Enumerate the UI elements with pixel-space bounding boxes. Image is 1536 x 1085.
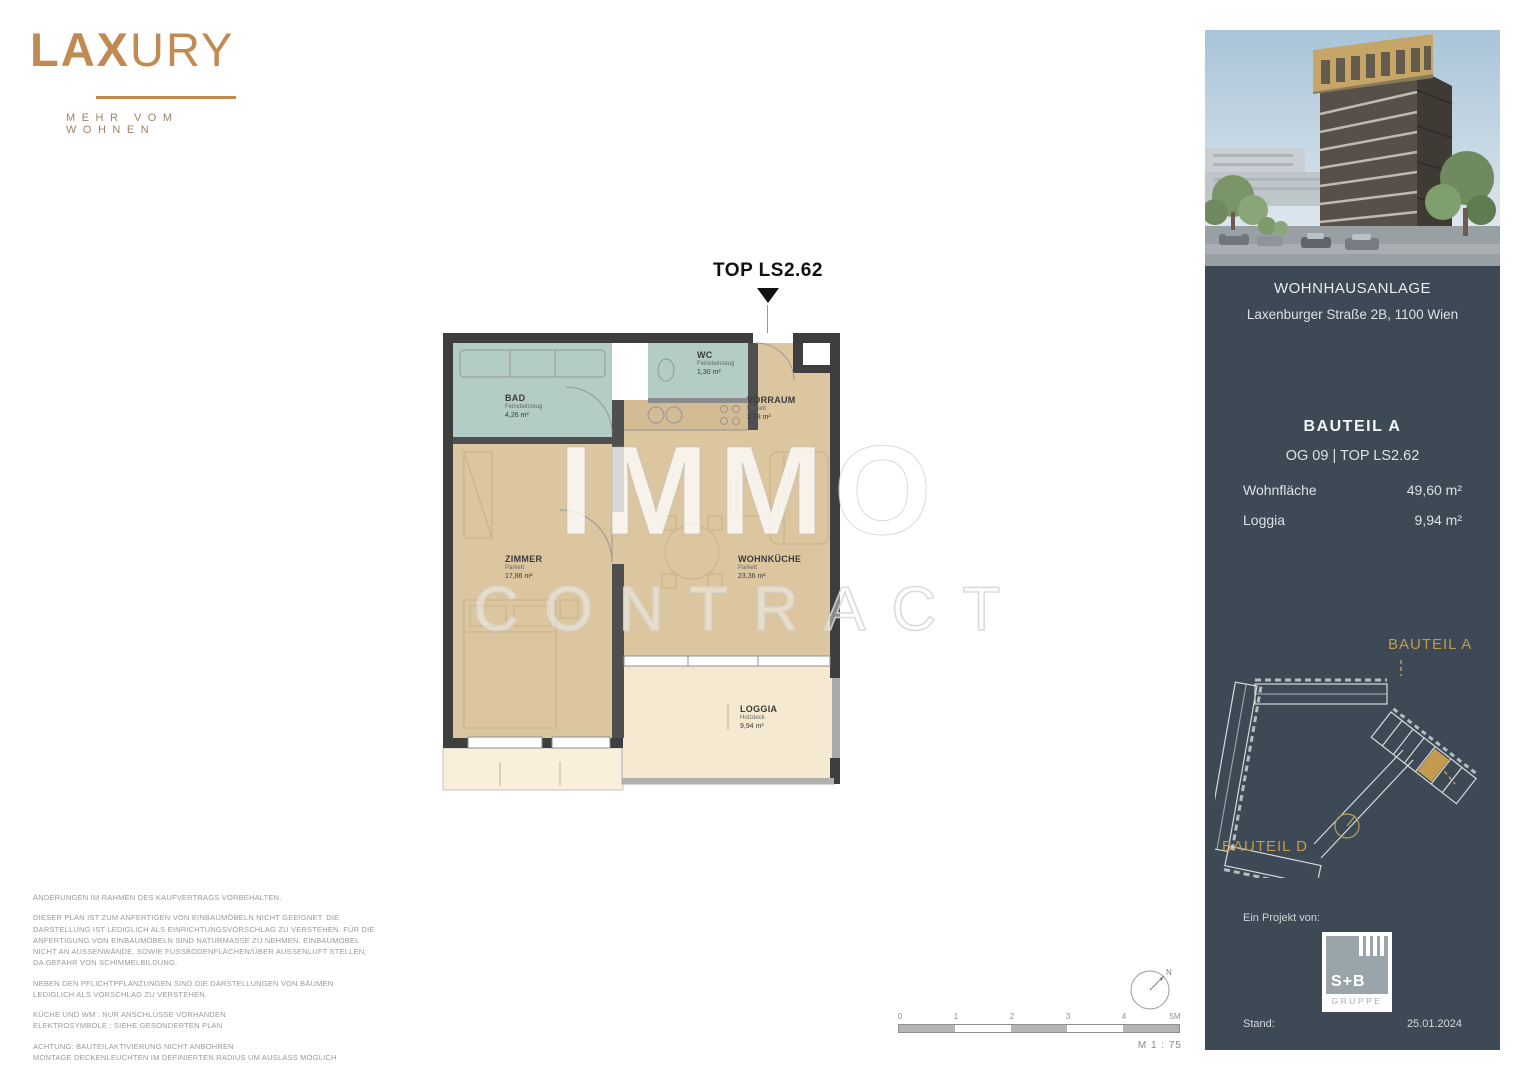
scale-bar-segments xyxy=(898,1024,1180,1033)
developer-logo-mark: S+B xyxy=(1326,936,1388,994)
disclaimer-paragraph: NEBEN DEN PFLICHTPFLANZUNGEN SIND DIE DA… xyxy=(33,978,378,1001)
floor-unit-line: OG 09 | TOP LS2.62 xyxy=(1205,448,1500,464)
stand-date: 25.01.2024 xyxy=(1407,1018,1462,1030)
brand-tagline: MEHR VOM WOHNEN xyxy=(66,112,234,136)
disclaimer-paragraph: ÄNDERUNGEN IM RAHMEN DES KAUFVERTRAGS VO… xyxy=(33,892,378,903)
building-rendering-image xyxy=(1205,30,1500,266)
disclaimer-paragraph: DIESER PLAN IST ZUM ANFERTIGEN VON EINBA… xyxy=(33,912,378,968)
project-title: WOHNHAUSANLAGE xyxy=(1205,280,1500,297)
area-value: 9,94 m² xyxy=(1415,512,1462,528)
room-label-zimmer: ZIMMER Parkett 17,86 m² xyxy=(505,554,542,582)
logo-divider xyxy=(96,96,236,99)
developer-logo-subtext: GRUPPE xyxy=(1326,996,1388,1006)
logo-bars-icon xyxy=(1359,936,1384,956)
disclaimer-paragraph: KÜCHE UND WM : NUR ANSCHLÜSSE VORHANDEN … xyxy=(33,1009,378,1032)
room-label-bad: BAD Feinsteinzeug 4,26 m² xyxy=(505,393,542,421)
developer-logo: S+B GRUPPE xyxy=(1322,932,1392,1012)
svg-text:N: N xyxy=(1166,968,1172,977)
floorplan-expose-page: LAXURY MEHR VOM WOHNEN TOP LS2.62 xyxy=(0,0,1536,1085)
floorplan-drawing xyxy=(440,300,850,800)
brand-name-light: URY xyxy=(130,23,234,76)
scale-tick: 2 xyxy=(1010,1012,1014,1021)
disclaimer-block: ÄNDERUNGEN IM RAHMEN DES KAUFVERTRAGS VO… xyxy=(33,892,378,1072)
developer-logo-text: S+B xyxy=(1331,973,1366,991)
scale-tick: 1 xyxy=(954,1012,958,1021)
scale-ratio-label: M 1 : 75 xyxy=(1138,1040,1182,1051)
area-row-loggia: Loggia 9,94 m² xyxy=(1243,512,1462,528)
room-label-wc: WC Feinsteinzeug 1,30 m² xyxy=(697,350,734,378)
unit-pointer-label: TOP LS2.62 xyxy=(690,260,846,282)
project-sidebar: WOHNHAUSANLAGE Laxenburger Straße 2B, 11… xyxy=(1205,30,1500,1050)
scale-tick: 5M xyxy=(1169,1012,1180,1021)
room-label-loggia: LOGGIA Holzdeck 9,94 m² xyxy=(740,704,777,732)
siteplan-label-bauteil-a: BAUTEIL A xyxy=(1388,636,1472,653)
scale-tick: 3 xyxy=(1066,1012,1070,1021)
project-by-label: Ein Projekt von: xyxy=(1243,912,1320,924)
siteplan-label-bauteil-d: BAUTEIL D xyxy=(1222,838,1308,855)
disclaimer-paragraph: ACHTUNG: BAUTEILAKTIVIERUNG NICHT ANBOHR… xyxy=(33,1041,378,1064)
area-value: 49,60 m² xyxy=(1407,482,1462,498)
bauteil-heading: BAUTEIL A xyxy=(1205,418,1500,436)
north-arrow-icon: N xyxy=(1126,964,1176,1014)
area-label: Loggia xyxy=(1243,512,1285,528)
brand-name-bold: LAX xyxy=(30,23,130,76)
area-label: Wohnfläche xyxy=(1243,482,1317,498)
project-address: Laxenburger Straße 2B, 1100 Wien xyxy=(1205,307,1500,322)
scale-tick: 0 xyxy=(898,1012,902,1021)
room-label-vorraum: VORRAUM Parkett 2,78 m² xyxy=(747,395,796,423)
brand-logo: LAXURY MEHR VOM WOHNEN xyxy=(30,24,234,76)
stand-label: Stand: xyxy=(1243,1018,1275,1030)
brand-name: LAXURY xyxy=(30,24,234,76)
area-row-wohnflaeche: Wohnfläche 49,60 m² xyxy=(1243,482,1462,498)
scale-tick: 4 xyxy=(1122,1012,1126,1021)
scale-bar: 0 1 2 3 4 5M M 1 : 75 xyxy=(898,1012,1182,1058)
room-label-wohnkueche: WOHNKÜCHE Parkett 23,36 m² xyxy=(738,554,801,582)
